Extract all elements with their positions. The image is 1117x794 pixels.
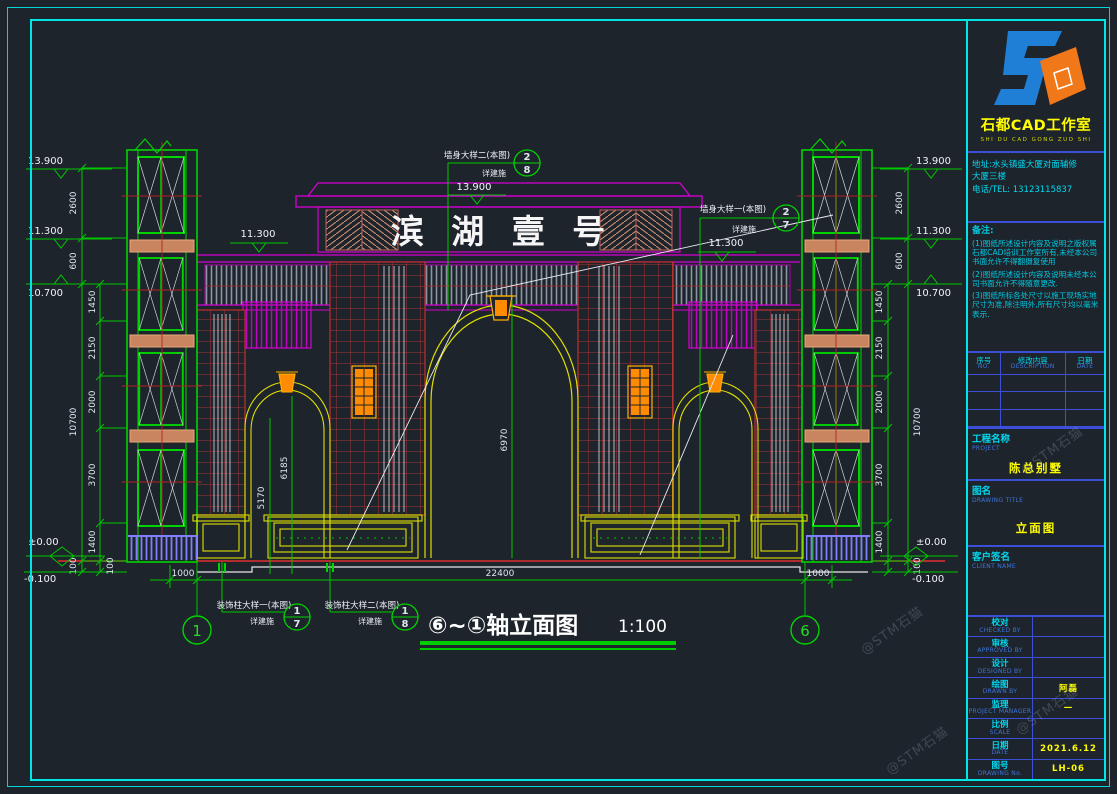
svg-text:5170: 5170 — [257, 486, 267, 509]
drawing-title-section: 图名 DRAWING TITLE 立面图 — [968, 481, 1104, 547]
rev-header-desc: 修改内容DESCRIPTION — [1001, 353, 1066, 375]
svg-text:1450: 1450 — [875, 290, 885, 313]
svg-text:-0.100: -0.100 — [912, 574, 944, 585]
note-3: (3)图纸所标各处尺寸以施工现场实地尺寸为准,除注明外,所有尺寸均以毫米表示. — [972, 291, 1100, 319]
svg-text:10700: 10700 — [913, 407, 923, 436]
svg-text:11.300: 11.300 — [709, 238, 744, 249]
rev-cell — [1066, 410, 1104, 427]
svg-text:2: 2 — [524, 152, 531, 163]
svg-text:8: 8 — [524, 165, 531, 176]
svg-text:10.700: 10.700 — [28, 288, 63, 299]
studio-logo — [984, 27, 1088, 109]
right-tower — [797, 139, 877, 562]
svg-text:1400: 1400 — [88, 530, 98, 553]
svg-text:600: 600 — [69, 252, 79, 269]
client-section: 客户签名 CLIENT NAME — [968, 547, 1104, 617]
note-2: (2)图纸所述设计内容及说明未经本公司书面允许不得随意更改. — [972, 270, 1100, 289]
left-tower — [122, 139, 202, 562]
sign-structure: 滨 湖 壹 号 — [296, 183, 702, 252]
revision-table: 序号NO. 修改内容DESCRIPTION 日期DATE — [968, 353, 1104, 429]
pier-inner-left — [330, 262, 425, 515]
address-section: 地址:水头镇盛大厦对面辅修 大厦三楼 电话/TEL: 13123115837 — [968, 153, 1104, 223]
field-scale: 比例SCALE — [968, 719, 1104, 739]
svg-text:22400: 22400 — [486, 569, 515, 579]
svg-text:1400: 1400 — [875, 530, 885, 553]
dims-left: 2600 600 10700 100 1450 2150 2000 3700 1… — [69, 164, 127, 576]
field-date: 日期DATE 2021.6.12 — [968, 739, 1104, 759]
rev-cell — [968, 410, 1001, 427]
svg-text:13.900: 13.900 — [28, 156, 63, 167]
elevation-drawing: 滨 湖 壹 号 — [0, 0, 968, 794]
svg-text:2000: 2000 — [875, 390, 885, 413]
svg-text:1000: 1000 — [807, 569, 830, 579]
svg-text:墙身大样二(本图): 墙身大样二(本图) — [444, 150, 510, 161]
project-section: 工程名称 PROJECT 陈总别墅 — [968, 429, 1104, 481]
pier-outer-left — [197, 310, 245, 515]
svg-text:详建施: 详建施 — [732, 224, 756, 234]
rev-cell — [968, 375, 1001, 392]
level-mid-left: 11.300 — [230, 229, 288, 252]
view-title: ⑥~①轴立面图 1:100 — [420, 612, 676, 650]
rev-cell — [1001, 410, 1066, 427]
svg-text:1: 1 — [294, 606, 301, 617]
rev-cell — [1066, 392, 1104, 409]
svg-text:3700: 3700 — [88, 463, 98, 486]
svg-text:1: 1 — [402, 606, 409, 617]
project-name: 陈总别墅 — [972, 460, 1100, 476]
svg-text:13.900: 13.900 — [916, 156, 951, 167]
field-drawing-no: 图号DRAWING No. LH-06 — [968, 760, 1104, 779]
callout-bottom-2: 装饰柱大样二(本图) 详建施 1 8 — [325, 562, 418, 630]
svg-text:详建施: 详建施 — [358, 616, 382, 626]
phone: 电话/TEL: 13123115837 — [972, 184, 1100, 196]
svg-text:1:100: 1:100 — [618, 617, 667, 637]
rev-header-date: 日期DATE — [1066, 353, 1104, 375]
drawing-title-value: 立面图 — [972, 520, 1100, 536]
rev-cell — [1001, 375, 1066, 392]
svg-text:7: 7 — [783, 220, 790, 231]
svg-text:1: 1 — [192, 622, 202, 640]
svg-text:±0.00: ±0.00 — [28, 537, 59, 548]
svg-text:1450: 1450 — [88, 290, 98, 313]
svg-text:-0.100: -0.100 — [24, 574, 56, 585]
svg-text:详建施: 详建施 — [482, 168, 506, 178]
fields-section: 校对CHECKED BY 审核APPROVED BY 设计DESIGNED BY… — [968, 617, 1104, 779]
svg-text:10700: 10700 — [69, 407, 79, 436]
title-block: 石都CAD工作室 SHI DU CAD GONG ZUO SHI 地址:水头镇盛… — [966, 19, 1106, 781]
field-drawn-by: 绘图DRAWN BY 阿磊 — [968, 678, 1104, 698]
svg-text:±0.00: ±0.00 — [916, 537, 947, 548]
planters — [193, 515, 807, 558]
rev-cell — [1066, 375, 1104, 392]
levels-right: 13.900 11.300 10.700 ±0.00 -0.100 — [880, 156, 962, 585]
notes-title: 备注: — [972, 226, 1100, 237]
svg-text:13.900: 13.900 — [457, 182, 492, 193]
address-line1: 地址:水头镇盛大厦对面辅修 — [972, 159, 1100, 171]
field-approved-by: 审核APPROVED BY — [968, 637, 1104, 657]
rev-cell — [1001, 392, 1066, 409]
pier-outer-right — [755, 310, 803, 515]
svg-text:⑥~①轴立面图: ⑥~①轴立面图 — [428, 612, 578, 639]
svg-text:2150: 2150 — [88, 336, 98, 359]
field-checked-by: 校对CHECKED BY — [968, 617, 1104, 637]
svg-text:11.300: 11.300 — [241, 229, 276, 240]
svg-text:详建施: 详建施 — [250, 616, 274, 626]
svg-text:7: 7 — [294, 619, 301, 630]
svg-text:墙身大样一(本图): 墙身大样一(本图) — [700, 204, 766, 215]
svg-text:3700: 3700 — [875, 463, 885, 486]
rev-header-no: 序号NO. — [968, 353, 1001, 375]
svg-text:8: 8 — [402, 619, 409, 630]
svg-text:2150: 2150 — [875, 336, 885, 359]
svg-text:11.300: 11.300 — [28, 226, 63, 237]
pier-inner-right — [578, 262, 673, 515]
svg-text:2600: 2600 — [895, 191, 905, 214]
side-arch-right — [673, 372, 758, 558]
notes-section: 备注: (1)图纸所述设计内容及说明之版权属石都CAD培训工作室所有,未经本公司… — [968, 223, 1104, 353]
svg-text:10.700: 10.700 — [916, 288, 951, 299]
svg-text:11.300: 11.300 — [916, 226, 951, 237]
svg-text:1000: 1000 — [172, 569, 195, 579]
studio-logo-section: 石都CAD工作室 SHI DU CAD GONG ZUO SHI — [968, 21, 1104, 153]
svg-text:600: 600 — [895, 252, 905, 269]
rev-cell — [968, 392, 1001, 409]
field-project-manager: 监理PROJECT MANAGER — — [968, 699, 1104, 719]
svg-text:6185: 6185 — [280, 457, 290, 480]
svg-text:2000: 2000 — [88, 390, 98, 413]
svg-text:装饰柱大样二(本图): 装饰柱大样二(本图) — [325, 600, 400, 611]
svg-text:2: 2 — [783, 207, 790, 218]
field-designed-by: 设计DESIGNED BY — [968, 658, 1104, 678]
gate-sign-text: 滨 湖 壹 号 — [391, 212, 613, 251]
levels-left: 13.900 11.300 10.700 ±0.00 -0.100 — [24, 156, 112, 585]
svg-text:6: 6 — [800, 622, 810, 640]
svg-text:6970: 6970 — [500, 428, 510, 451]
address-line2: 大厦三楼 — [972, 171, 1100, 183]
svg-text:2600: 2600 — [69, 191, 79, 214]
svg-text:100: 100 — [106, 557, 116, 574]
cad-canvas: { "drawing": { "sign_text": "滨 湖 壹 号", "… — [0, 0, 1117, 794]
central-arch — [425, 296, 578, 558]
svg-text:装饰柱大样一(本图): 装饰柱大样一(本图) — [217, 600, 292, 611]
studio-name: 石都CAD工作室 — [968, 114, 1104, 135]
note-1: (1)图纸所述设计内容及说明之版权属石都CAD培训工作室所有,未经本公司书面允许… — [972, 239, 1100, 267]
studio-pinyin: SHI DU CAD GONG ZUO SHI — [968, 137, 1104, 143]
